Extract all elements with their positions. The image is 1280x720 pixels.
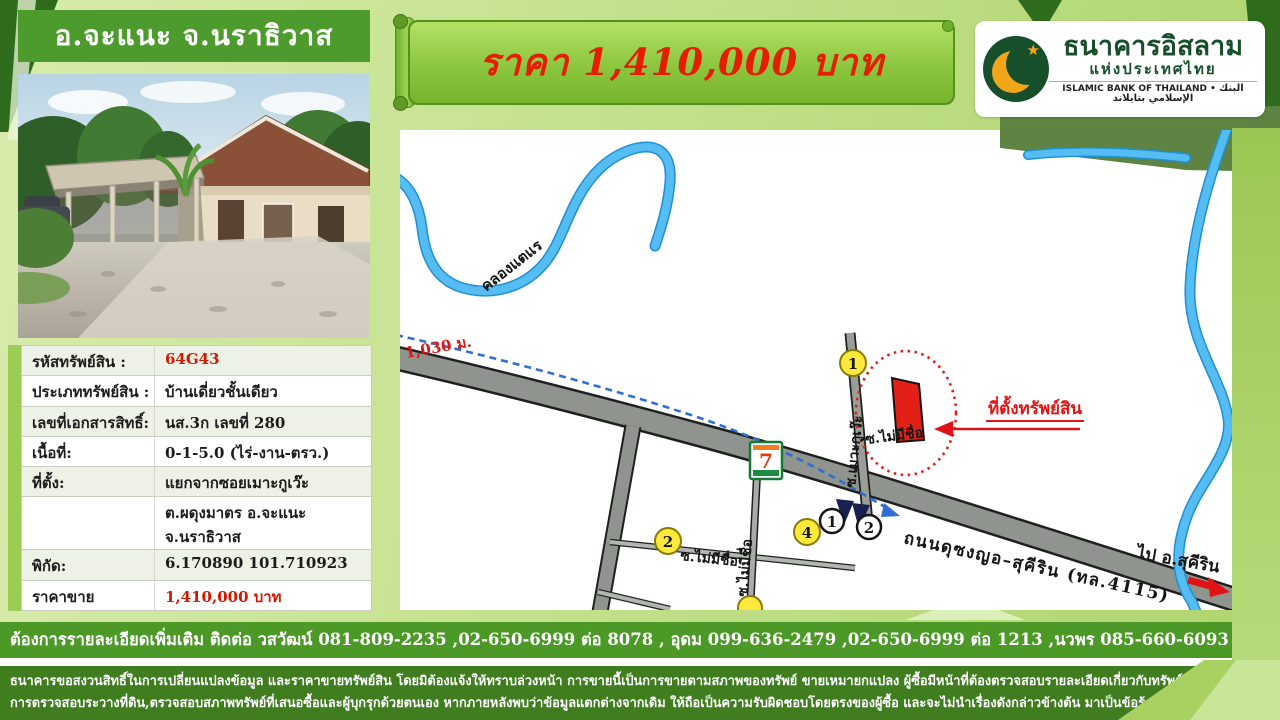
- location-title: อ.จะแนะ จ.นราธิวาส: [55, 14, 334, 58]
- bank-name-block: ธนาคารอิสลาม แห่งประเทศไทย ISLAMIC BANK …: [1049, 33, 1257, 104]
- property-parcel: [856, 351, 956, 475]
- location-header: อ.จะแนะ จ.นราธิวาส: [18, 10, 370, 62]
- river-top-right: [1028, 152, 1186, 158]
- soi-unnamed-label-2: ซ.ไม่มีชื่อ: [680, 545, 739, 570]
- marker-y1-label: 1: [848, 355, 858, 373]
- table-row: เลขที่เอกสารสิทธิ์: นส.3ก เลขที่ 280: [22, 407, 371, 437]
- disclaimer-line-1: ธนาคารขอสงวนสิทธิ์ในการเปลี่ยนแปลงข้อมูล…: [0, 671, 1280, 693]
- property-callout-label: ที่ตั้งทรัพย์สิน: [988, 395, 1082, 419]
- seven-label: 7: [759, 449, 773, 473]
- bank-name-th2: แห่งประเทศไทย: [1049, 62, 1257, 78]
- field-value: 0-1-5.0 (ไร่-งาน-ตรว.): [155, 437, 371, 466]
- bg-right-band: [1232, 128, 1280, 720]
- field-value: บ้านเดี่ยวชั้นเดียว: [155, 376, 371, 405]
- scroll-curl-icon: [393, 96, 408, 111]
- seven-eleven-icon: 7: [750, 442, 782, 479]
- field-value: 64G43: [155, 346, 371, 375]
- contact-bar: ต้องการรายละเอียดเพิ่มเติม ติดต่อ วสวัฒน…: [0, 622, 1280, 658]
- field-label: ประเภททรัพย์สิน :: [22, 376, 155, 405]
- house-photo-illustration: [18, 74, 370, 338]
- table-row: ที่ตั้ง: แยกจากซอยเมาะกูเว๊ะ: [22, 467, 371, 497]
- table-row: รหัสทรัพย์สิน : 64G43: [22, 346, 371, 376]
- canal-top-left: [400, 147, 670, 291]
- field-label: [22, 497, 155, 549]
- location-map: ที่ตั้งทรัพย์สิน 7 4 1 2 1 2: [400, 130, 1232, 610]
- disclaimer-line-2: การตรวจสอบระวางที่ดิน,ตรวจสอบสภาพทรัพย์ท…: [0, 693, 1280, 715]
- bank-name-en: ISLAMIC BANK OF THAILAND: [1062, 84, 1207, 94]
- table-row: ราคาขาย 1,410,000 บาท: [22, 581, 371, 610]
- bank-name-th: ธนาคารอิสลาม: [1049, 33, 1257, 61]
- table-row: ต.ผดุงมาตร อ.จะแนะ จ.นราธิวาส: [22, 497, 371, 550]
- crescent-star-icon: ★: [983, 36, 1049, 102]
- field-value: 6.170890 101.710923: [155, 550, 371, 579]
- marker-1-label: 1: [827, 513, 837, 531]
- price-text: ราคา 1,410,000 บาท: [479, 33, 884, 92]
- bank-name-en-row: ISLAMIC BANK OF THAILAND • البنك الإسلام…: [1049, 81, 1257, 105]
- field-label: เนื้อที่:: [22, 437, 155, 466]
- table-row: เนื้อที่: 0-1-5.0 (ไร่-งาน-ตรว.): [22, 437, 371, 467]
- scroll-curl-icon: [942, 20, 954, 32]
- bullet-separator: •: [1210, 84, 1216, 94]
- field-label: ราคาขาย: [22, 581, 155, 610]
- bank-logo: ★ ธนาคารอิสลาม แห่งประเทศไทย ISLAMIC BAN…: [975, 21, 1265, 117]
- field-label: พิกัด:: [22, 550, 155, 579]
- marker-2-label: 2: [864, 519, 874, 537]
- banner-body: ราคา 1,410,000 บาท: [408, 20, 955, 105]
- marker-y2-label: 2: [663, 533, 673, 551]
- property-photo: [18, 74, 370, 338]
- scroll-curl-icon: [393, 14, 408, 29]
- field-label: ที่ตั้ง:: [22, 467, 155, 496]
- side-road-wide: [600, 426, 633, 610]
- table-accent-strip: [8, 345, 21, 611]
- property-details-table: รหัสทรัพย์สิน : 64G43 ประเภททรัพย์สิน : …: [8, 345, 372, 611]
- soi-unnamed-label-1: ซ.ไม่มีชื่อ: [864, 422, 924, 448]
- callout-arrow-icon: [934, 421, 953, 437]
- field-value: แยกจากซอยเมาะกูเว๊ะ: [155, 467, 371, 496]
- property-callout: ที่ตั้งทรัพย์สิน: [934, 395, 1084, 437]
- table-row: ประเภททรัพย์สิน : บ้านเดี่ยวชั้นเดียว: [22, 376, 371, 406]
- bar-divider: [0, 658, 1280, 666]
- disclaimer-bar: ธนาคารขอสงวนสิทธิ์ในการเปลี่ยนแปลงข้อมูล…: [0, 666, 1280, 720]
- field-value: ต.ผดุงมาตร อ.จะแนะ จ.นราธิวาส: [155, 497, 371, 549]
- field-value: นส.3ก เลขที่ 280: [155, 407, 371, 436]
- contact-text: ต้องการรายละเอียดเพิ่มเติม ติดต่อ วสวัฒน…: [0, 627, 1280, 653]
- field-label: เลขที่เอกสารสิทธิ์:: [22, 407, 155, 436]
- river-right: [1179, 130, 1229, 610]
- field-value: 1,410,000 บาท: [155, 581, 371, 610]
- table-body: รหัสทรัพย์สิน : 64G43 ประเภททรัพย์สิน : …: [21, 345, 372, 611]
- property-flyer: อ.จะแนะ จ.นราธิวาส: [0, 0, 1280, 720]
- field-label: รหัสทรัพย์สิน :: [22, 346, 155, 375]
- table-row: พิกัด: 6.170890 101.710923: [22, 550, 371, 580]
- junction-markers: 4 1 2: [794, 499, 881, 545]
- price-banner: ราคา 1,410,000 บาท: [395, 13, 957, 112]
- marker-4-label: 4: [802, 524, 812, 542]
